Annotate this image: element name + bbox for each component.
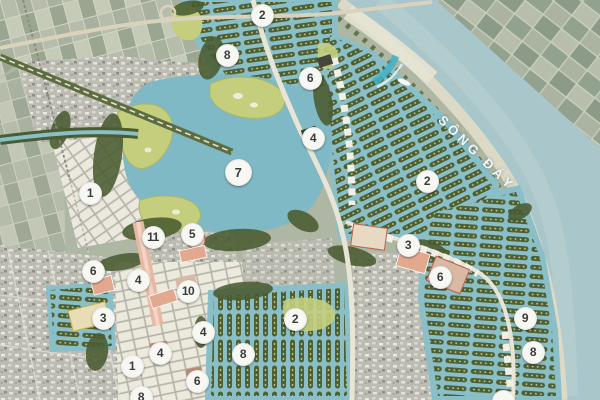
masterplan-map: SÔNG ĐÁY 28647215113664103294848168 (0, 0, 600, 400)
map-marker-2: 2 (251, 4, 274, 27)
map-marker-6: 6 (429, 266, 452, 289)
map-marker-2: 2 (416, 170, 439, 193)
map-marker-6: 6 (82, 260, 105, 283)
map-marker-9: 9 (514, 307, 537, 330)
map-marker-11: 11 (142, 226, 165, 249)
map-marker-8: 8 (232, 343, 255, 366)
map-marker-1: 1 (79, 182, 102, 205)
map-marker-3: 3 (397, 234, 420, 257)
map-marker-7: 7 (225, 159, 252, 186)
map-marker-4: 4 (149, 342, 172, 365)
map-marker-4: 4 (302, 127, 325, 150)
map-marker-6: 6 (186, 370, 209, 393)
map-marker-4: 4 (192, 321, 215, 344)
map-marker-2: 2 (284, 308, 307, 331)
map-marker-4: 4 (127, 269, 150, 292)
map-marker-10: 10 (177, 280, 200, 303)
map-marker-8: 8 (522, 341, 545, 364)
map-marker-1: 1 (121, 355, 144, 378)
map-marker-8: 8 (216, 44, 239, 67)
map-marker-3: 3 (92, 307, 115, 330)
map-marker-6: 6 (299, 67, 322, 90)
map-marker-5: 5 (181, 223, 204, 246)
